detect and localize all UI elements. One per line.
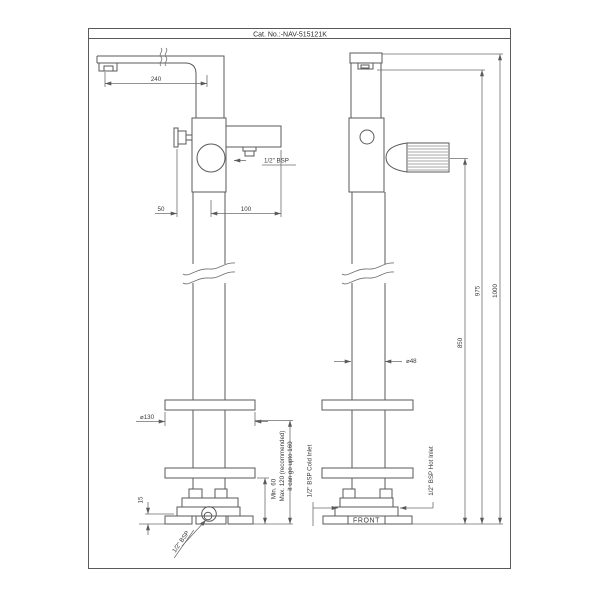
handle-cone bbox=[386, 143, 407, 172]
max-height-text-line2: it can go upto 160 bbox=[287, 441, 294, 491]
drawing-page: Cat. No.:-NAV-515121K bbox=[0, 0, 600, 600]
pillar-side bbox=[352, 192, 385, 489]
dim-50-text: 50 bbox=[158, 206, 165, 213]
aerator-inner bbox=[104, 66, 113, 71]
base-wing-left-side bbox=[323, 516, 348, 524]
title-block: Cat. No.:-NAV-515121K bbox=[89, 29, 511, 569]
pillar-break-mark-side bbox=[342, 263, 394, 284]
mixer-body-side bbox=[349, 118, 384, 192]
front-marking-text: FRONT bbox=[353, 518, 380, 525]
dim-15-text: 15 bbox=[138, 496, 145, 503]
lower-flange-front bbox=[165, 468, 255, 478]
min-height-text: Min. 60 bbox=[271, 478, 278, 499]
dim-975-text: 975 bbox=[475, 285, 482, 296]
upper-flange-front bbox=[165, 400, 255, 410]
base-block-lower bbox=[177, 507, 240, 516]
dim-130-extensions bbox=[165, 412, 255, 426]
base-bsp-text: 1/2" BSP bbox=[171, 530, 191, 554]
dim-1000-text: 1000 bbox=[492, 284, 499, 298]
base-wing-left bbox=[165, 516, 192, 524]
base-center bbox=[196, 516, 226, 524]
pillar-front bbox=[193, 192, 225, 489]
hot-inlet-text: 1/2" BSP Hot Inlet bbox=[428, 446, 435, 496]
base-nut-left bbox=[189, 489, 202, 498]
side-view-dimensions: ⌀48 850 975 1000 1/2" BSP Cold Inlet 1/2… bbox=[307, 54, 504, 526]
technical-drawing-canvas: Cat. No.:-NAV-515121K bbox=[0, 0, 600, 600]
catalog-number-text: Cat. No.:-NAV-515121K bbox=[253, 32, 327, 39]
base-block-upper-side bbox=[340, 498, 393, 507]
spout-end-aerator-inner bbox=[361, 65, 369, 68]
upper-flange-side bbox=[322, 400, 413, 410]
base-block-upper bbox=[182, 498, 238, 507]
pillar-break-mark bbox=[183, 263, 235, 284]
front-view bbox=[97, 48, 281, 524]
lower-flange-side bbox=[322, 468, 413, 478]
knurl-hatching bbox=[408, 146, 448, 170]
outlet-nipple-inner bbox=[245, 151, 254, 156]
side-handle-stem bbox=[186, 135, 192, 140]
max-height-text-group: Max. 120 (recommended) it can go upto 16… bbox=[279, 431, 294, 502]
dim-240-text: 240 bbox=[151, 76, 162, 83]
riser-side bbox=[351, 63, 381, 118]
base-wing-right bbox=[228, 516, 253, 524]
outlet-bsp-text: 1/2" BSP bbox=[264, 158, 289, 165]
outlet-nipple bbox=[243, 147, 256, 151]
side-handle-knob bbox=[178, 131, 186, 144]
shower-outlet-arm bbox=[226, 126, 281, 147]
base-nut-right bbox=[215, 489, 227, 498]
base-nut-left-side bbox=[343, 489, 355, 498]
front-view-dimensions: 240 50 100 1/2" BSP ⌀130 15 Min. 60 Max.… bbox=[105, 72, 296, 558]
cold-inlet-text: 1/2" BSP Cold Inlet bbox=[307, 444, 314, 497]
dim-850-text: 850 bbox=[457, 337, 464, 348]
drawing-border bbox=[89, 29, 511, 569]
control-knob bbox=[197, 144, 225, 172]
base-nut-right-side bbox=[380, 489, 392, 498]
knurled-handle bbox=[407, 143, 449, 172]
side-handle-plate bbox=[174, 128, 178, 147]
dim-130-text: ⌀130 bbox=[140, 414, 155, 421]
base-bsp-label-group: 1/2" BSP bbox=[169, 526, 194, 558]
spout-end-cap bbox=[350, 53, 382, 63]
max-height-text-line1: Max. 120 (recommended) bbox=[279, 431, 286, 502]
dim-100-text: 100 bbox=[241, 206, 252, 213]
body-detail-circle bbox=[360, 130, 374, 144]
aerator bbox=[99, 63, 117, 71]
base-wing-right-side bbox=[385, 516, 412, 524]
dim-48-text: ⌀48 bbox=[406, 358, 417, 365]
height-dims-extensions bbox=[377, 54, 503, 524]
base-inlet-port bbox=[202, 507, 217, 522]
base-block-lower-side bbox=[335, 507, 398, 516]
